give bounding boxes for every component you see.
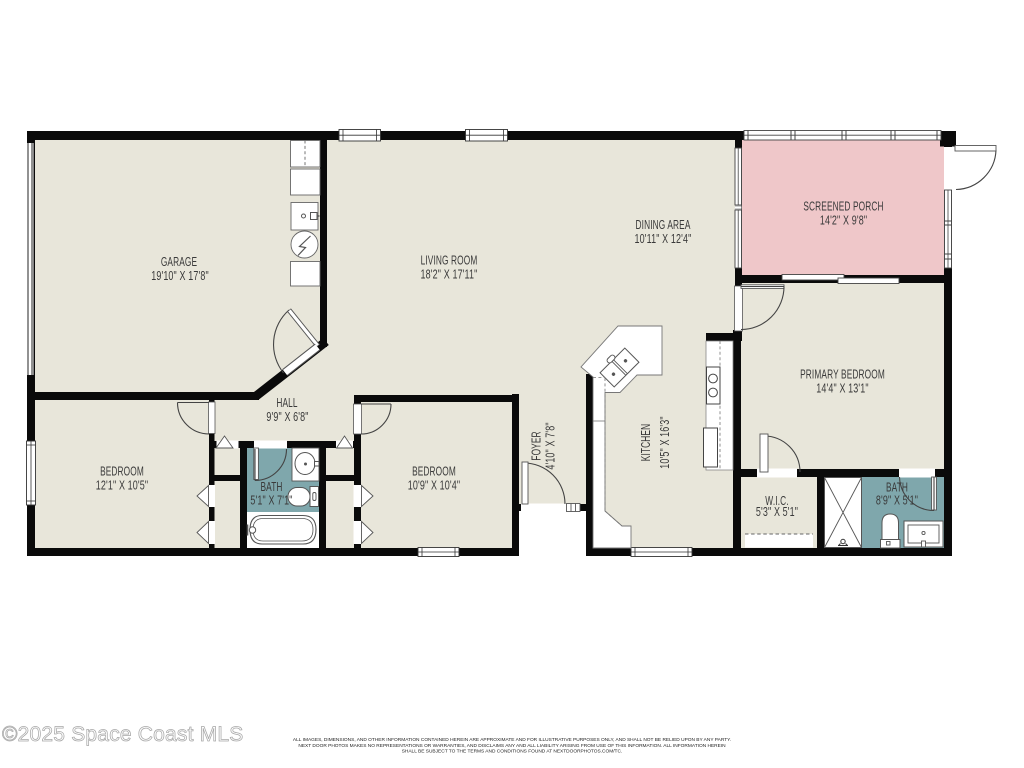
svg-text:SCREENED PORCH: SCREENED PORCH (803, 200, 883, 214)
svg-text:KITCHEN: KITCHEN (639, 424, 653, 461)
svg-text:LIVING ROOM: LIVING ROOM (421, 254, 478, 268)
svg-text:9'9" X 6'8": 9'9" X 6'8" (266, 411, 308, 425)
svg-text:SHALL BE SUBJECT TO THE TERMS: SHALL BE SUBJECT TO THE TERMS AND CONDIT… (402, 749, 623, 755)
svg-text:PRIMARY BEDROOM: PRIMARY BEDROOM (800, 368, 885, 382)
svg-text:12'1" X 10'5": 12'1" X 10'5" (96, 479, 148, 493)
svg-text:NEXT DOOR PHOTOS MAKES NO REPR: NEXT DOOR PHOTOS MAKES NO REPRESENTATION… (298, 743, 726, 749)
svg-text:BEDROOM: BEDROOM (412, 465, 456, 479)
svg-text:DINING AREA: DINING AREA (635, 218, 690, 232)
svg-text:10'5" X 16'3": 10'5" X 16'3" (659, 416, 673, 468)
svg-text:10'9" X 10'4": 10'9" X 10'4" (408, 479, 460, 493)
svg-text:5'3" X 5'1": 5'3" X 5'1" (756, 506, 798, 520)
svg-text:5'1" X 7'1": 5'1" X 7'1" (250, 494, 292, 508)
svg-text:18'2" X 17'11": 18'2" X 17'11" (421, 268, 478, 282)
svg-text:19'10" X 17'8": 19'10" X 17'8" (151, 270, 209, 284)
svg-text:GARAGE: GARAGE (161, 255, 197, 269)
svg-text:HALL: HALL (276, 396, 297, 410)
svg-text:8'9" X 5'1": 8'9" X 5'1" (876, 494, 918, 508)
svg-text:14'4" X 13'1": 14'4" X 13'1" (816, 382, 868, 396)
svg-text:FOYER: FOYER (530, 431, 544, 460)
svg-text:BEDROOM: BEDROOM (100, 465, 144, 479)
svg-text:4'10" X 7'8": 4'10" X 7'8" (544, 422, 558, 469)
svg-text:10'11" X 12'4": 10'11" X 12'4" (635, 233, 692, 247)
svg-text:ALL IMAGES, DIMENSIONS, AND OT: ALL IMAGES, DIMENSIONS, AND OTHER INFORM… (293, 737, 731, 743)
svg-text:14'2" X 9'8": 14'2" X 9'8" (820, 214, 867, 228)
svg-text:BATH: BATH (260, 480, 282, 494)
svg-text:©2025 Space Coast MLS: ©2025 Space Coast MLS (2, 723, 243, 746)
svg-text:BATH: BATH (886, 481, 908, 495)
